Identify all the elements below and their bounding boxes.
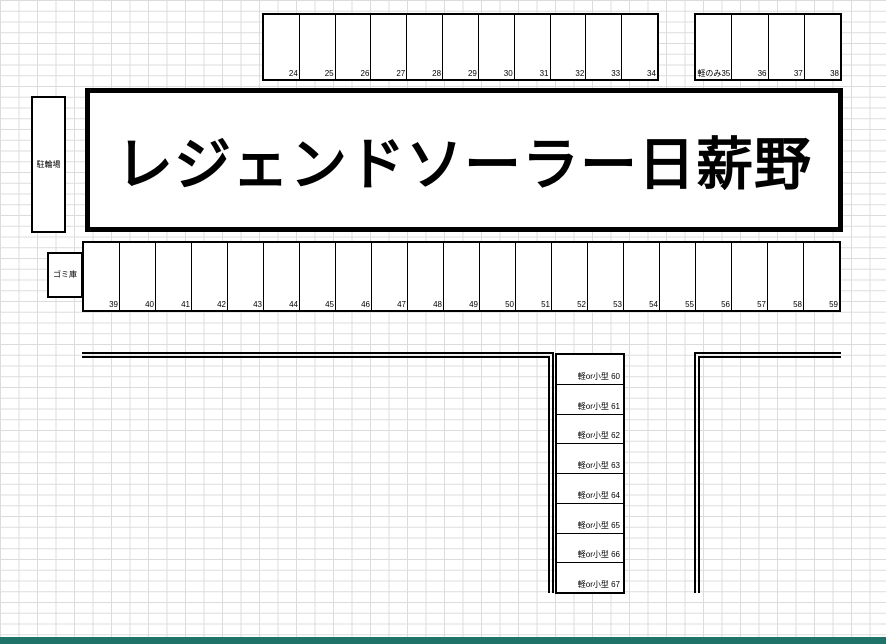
space-label: 軽or小型 65 <box>578 521 620 531</box>
space-67-kei-or-small: 軽or小型 67 <box>557 562 623 592</box>
space-number: 52 <box>577 300 586 310</box>
space-number: 50 <box>505 300 514 310</box>
space-number: 55 <box>685 300 694 310</box>
space-33: 33 <box>585 15 621 79</box>
space-number: 26 <box>361 69 370 79</box>
space-55: 55 <box>659 243 695 310</box>
space-number: 41 <box>181 300 190 310</box>
road-boundary-right <box>694 352 841 593</box>
space-56: 56 <box>695 243 731 310</box>
space-51: 51 <box>515 243 551 310</box>
parking-row-top-kei: 軽のみ35 36 37 38 <box>694 13 842 81</box>
space-number: 36 <box>758 69 767 79</box>
space-number: 38 <box>830 69 839 79</box>
space-27: 27 <box>370 15 406 79</box>
space-number: 40 <box>145 300 154 310</box>
space-number: 49 <box>469 300 478 310</box>
space-label: 軽or小型 66 <box>578 550 620 560</box>
space-60-kei-or-small: 軽or小型 60 <box>557 355 623 384</box>
space-63-kei-or-small: 軽or小型 63 <box>557 443 623 473</box>
space-number: 54 <box>649 300 658 310</box>
space-number: 51 <box>541 300 550 310</box>
space-44: 44 <box>263 243 299 310</box>
space-52: 52 <box>551 243 587 310</box>
space-number: 28 <box>432 69 441 79</box>
space-47: 47 <box>371 243 407 310</box>
space-43: 43 <box>227 243 263 310</box>
space-61-kei-or-small: 軽or小型 61 <box>557 384 623 414</box>
space-number: 29 <box>468 69 477 79</box>
space-62-kei-or-small: 軽or小型 62 <box>557 414 623 444</box>
site-title: レジェンドソーラー日薪野 <box>116 119 812 201</box>
space-label: 軽or小型 62 <box>578 431 620 441</box>
space-31: 31 <box>514 15 550 79</box>
space-41: 41 <box>155 243 191 310</box>
space-number: 59 <box>829 300 838 310</box>
space-number: 57 <box>757 300 766 310</box>
space-29: 29 <box>442 15 478 79</box>
space-30: 30 <box>478 15 514 79</box>
space-66-kei-or-small: 軽or小型 66 <box>557 533 623 563</box>
space-label: 軽or小型 67 <box>578 580 620 590</box>
space-50: 50 <box>479 243 515 310</box>
parking-row-top: 24 25 26 27 28 29 30 31 32 33 34 <box>262 13 659 81</box>
space-35-kei-only: 軽のみ35 <box>696 15 731 79</box>
space-37: 37 <box>768 15 804 79</box>
space-32: 32 <box>550 15 586 79</box>
space-46: 46 <box>335 243 371 310</box>
space-53: 53 <box>587 243 623 310</box>
status-bar-sliver <box>0 637 886 644</box>
space-label: 軽or小型 60 <box>578 372 620 382</box>
space-number: 37 <box>794 69 803 79</box>
parking-row-middle: 39 40 41 42 43 44 45 46 47 48 49 50 51 5… <box>82 241 841 312</box>
space-36: 36 <box>731 15 767 79</box>
space-57: 57 <box>731 243 767 310</box>
space-58: 58 <box>767 243 803 310</box>
space-label: 軽or小型 63 <box>578 461 620 471</box>
bicycle-shed-box: 駐輪場 <box>31 96 66 233</box>
garbage-shed-box: ゴミ庫 <box>47 252 83 298</box>
space-24: 24 <box>264 15 299 79</box>
space-number: 58 <box>793 300 802 310</box>
space-65-kei-or-small: 軽or小型 65 <box>557 503 623 533</box>
space-28: 28 <box>406 15 442 79</box>
space-45: 45 <box>299 243 335 310</box>
space-48: 48 <box>407 243 443 310</box>
space-49: 49 <box>443 243 479 310</box>
space-59: 59 <box>803 243 839 310</box>
space-number: 32 <box>575 69 584 79</box>
space-number: 30 <box>504 69 513 79</box>
bicycle-shed-label: 駐輪場 <box>37 160 61 170</box>
road-boundary-left <box>82 352 554 593</box>
space-number: 25 <box>325 69 334 79</box>
space-number: 48 <box>433 300 442 310</box>
space-number: 45 <box>325 300 334 310</box>
space-number: 27 <box>396 69 405 79</box>
space-38: 38 <box>804 15 840 79</box>
space-number: 軽のみ35 <box>697 69 730 79</box>
space-number: 39 <box>109 300 118 310</box>
space-number: 46 <box>361 300 370 310</box>
spreadsheet-canvas: 24 25 26 27 28 29 30 31 32 33 34 軽のみ35 3… <box>0 0 886 644</box>
space-number: 34 <box>647 69 656 79</box>
space-number: 53 <box>613 300 622 310</box>
space-34: 34 <box>621 15 657 79</box>
space-number: 47 <box>397 300 406 310</box>
space-number: 44 <box>289 300 298 310</box>
space-label: 軽or小型 61 <box>578 402 620 412</box>
space-42: 42 <box>191 243 227 310</box>
space-40: 40 <box>119 243 155 310</box>
space-number: 43 <box>253 300 262 310</box>
space-54: 54 <box>623 243 659 310</box>
garbage-shed-label: ゴミ庫 <box>53 270 77 280</box>
space-number: 42 <box>217 300 226 310</box>
space-26: 26 <box>335 15 371 79</box>
parking-column-small: 軽or小型 60 軽or小型 61 軽or小型 62 軽or小型 63 軽or小… <box>555 353 625 594</box>
site-title-box: レジェンドソーラー日薪野 <box>85 88 843 232</box>
space-label: 軽or小型 64 <box>578 491 620 501</box>
space-number: 24 <box>289 69 298 79</box>
space-64-kei-or-small: 軽or小型 64 <box>557 473 623 503</box>
space-25: 25 <box>299 15 335 79</box>
space-39: 39 <box>84 243 119 310</box>
space-number: 33 <box>611 69 620 79</box>
space-number: 56 <box>721 300 730 310</box>
space-number: 31 <box>540 69 549 79</box>
